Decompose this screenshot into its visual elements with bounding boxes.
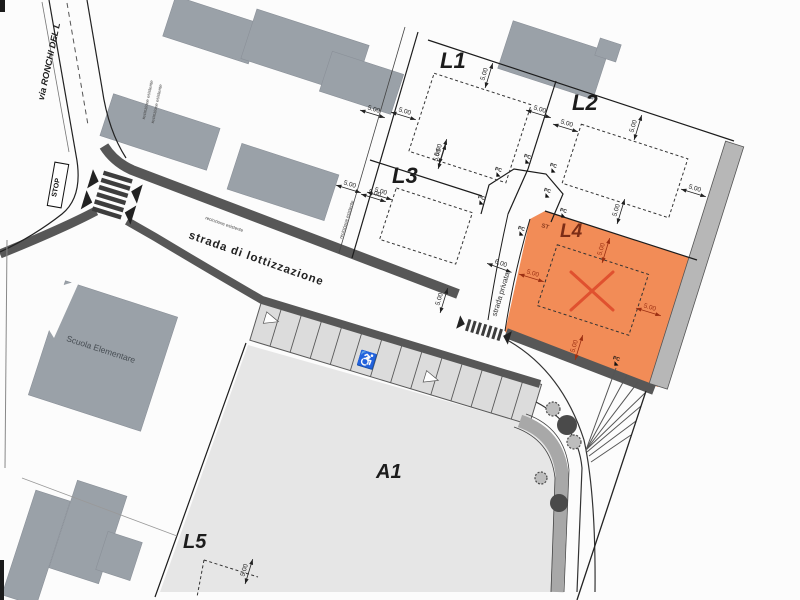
dimension: 5.00 bbox=[477, 61, 494, 89]
dimension: 5.00 bbox=[552, 116, 580, 133]
tree-solid-icon bbox=[557, 415, 577, 435]
road-center-dashed-line bbox=[67, 3, 88, 125]
tree-outline-icon bbox=[567, 435, 581, 449]
site-plan-page: Scuola Elementare ♿ bbox=[0, 0, 800, 600]
dimension-value: 5.00 bbox=[343, 179, 358, 190]
pc-marker-label: PC bbox=[559, 207, 568, 215]
dimension-value: 5.00 bbox=[688, 183, 703, 194]
envelope-l1 bbox=[409, 73, 531, 183]
dimension-value: 5.00 bbox=[479, 67, 490, 82]
site-plan-drawing: Scuola Elementare ♿ bbox=[0, 0, 800, 600]
dimension-value: 5.00 bbox=[611, 203, 622, 218]
pc-marker: PC bbox=[548, 162, 558, 174]
tree-outline-icon bbox=[546, 402, 560, 416]
pc-marker: PC bbox=[542, 187, 552, 199]
lot-label-a1: A1 bbox=[375, 461, 402, 483]
pc-marker-label: PC bbox=[494, 166, 503, 174]
dimension: 5.00 bbox=[390, 104, 418, 121]
lot-label-l5: L5 bbox=[183, 531, 207, 553]
zebra-crossing-private-road bbox=[456, 315, 512, 344]
pc-marker-label: PC bbox=[549, 162, 558, 170]
fence-note: recinzione esistente bbox=[338, 199, 355, 239]
envelope-l2 bbox=[562, 124, 688, 218]
tree-outline-icon bbox=[535, 472, 547, 484]
dimension: 5.00 bbox=[525, 102, 553, 119]
building bbox=[498, 21, 609, 99]
dimension-value: 5.00 bbox=[533, 104, 548, 115]
road-south-band-west bbox=[0, 211, 96, 254]
boundary-line-se bbox=[577, 391, 646, 600]
via-ronchi-label: via RONCHI DEL L bbox=[36, 22, 62, 101]
pc-marker-label: PC bbox=[543, 187, 552, 195]
lot-label-l3: L3 bbox=[392, 163, 418, 188]
building bbox=[319, 51, 403, 114]
scan-artifact bbox=[0, 560, 4, 600]
dimension: 5.00 bbox=[626, 113, 643, 141]
envelope-l3 bbox=[380, 188, 473, 264]
lot-label-l4: L4 bbox=[560, 221, 583, 242]
tree-solid-icon bbox=[550, 494, 568, 512]
dimension: 5.00 bbox=[680, 181, 708, 198]
dimension-value: 5.00 bbox=[560, 118, 575, 129]
pc-marker: PC bbox=[493, 166, 503, 178]
dimension-value: 5.00 bbox=[434, 292, 445, 307]
fence-note: recinzione esistente bbox=[205, 215, 245, 233]
dimension-value: 5.00 bbox=[398, 106, 413, 117]
scan-artifact bbox=[0, 0, 5, 12]
dimension: 5.00 bbox=[335, 177, 363, 194]
divider-stub bbox=[508, 169, 528, 214]
lot-label-l2: L2 bbox=[572, 90, 598, 115]
dimension-value: 5.00 bbox=[628, 119, 639, 134]
dimension: 6.00 bbox=[486, 256, 514, 274]
pc-marker-label: PC bbox=[517, 225, 526, 233]
lot-label-l1: L1 bbox=[440, 48, 466, 73]
divider-l1-l2 bbox=[528, 81, 556, 169]
pc-marker: PC bbox=[516, 225, 526, 237]
dimension-value: 6.00 bbox=[494, 258, 509, 269]
